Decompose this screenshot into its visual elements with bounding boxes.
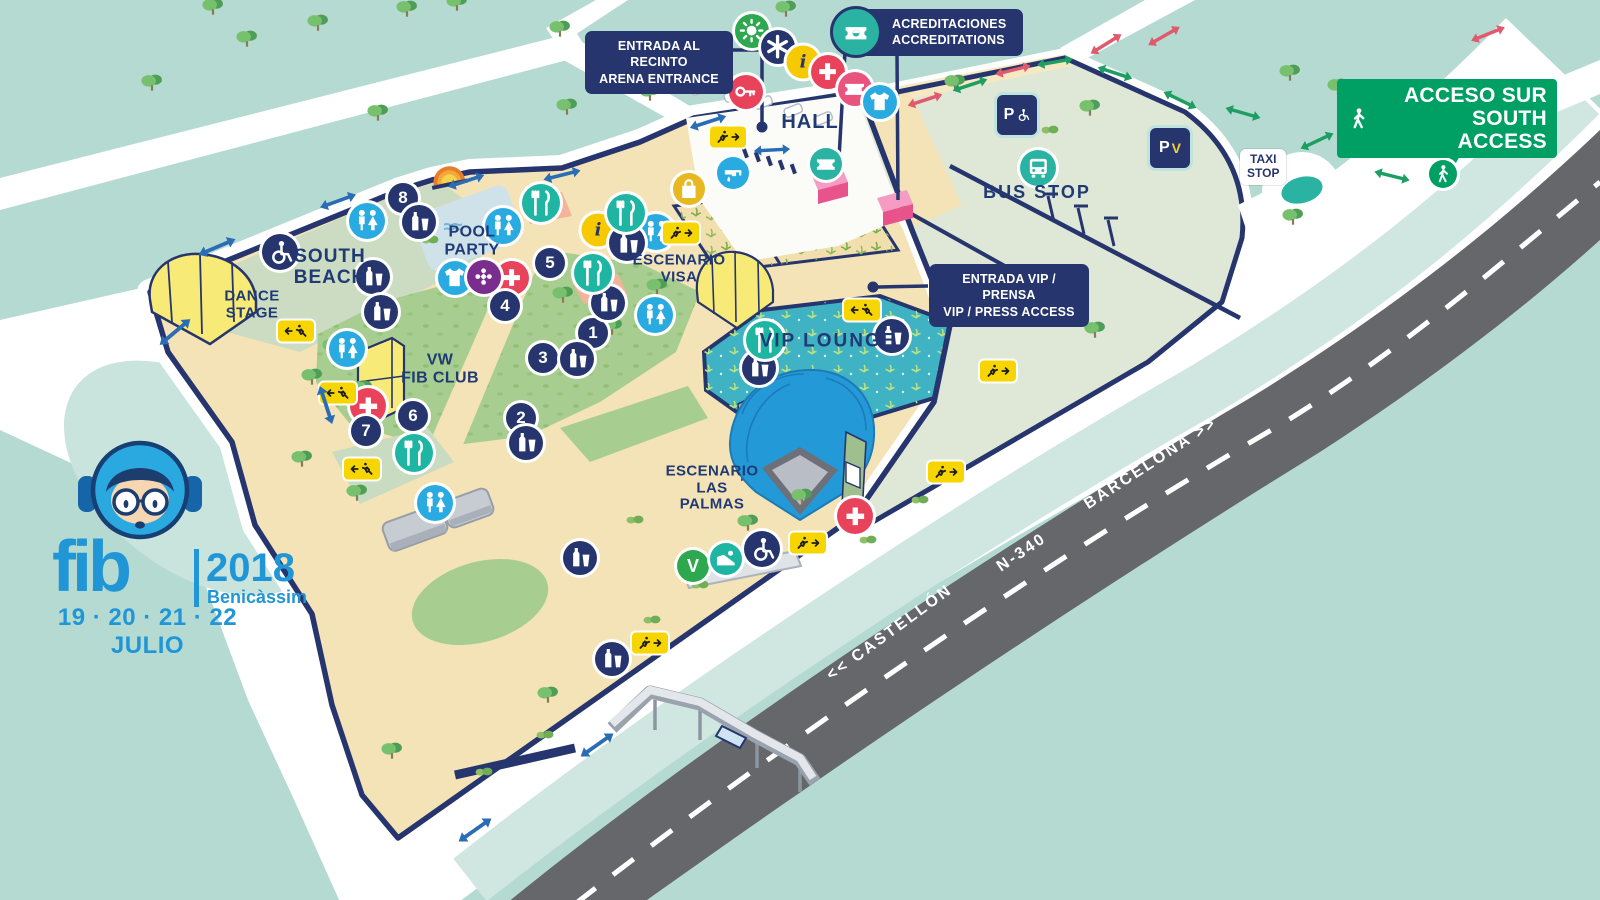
hall-label: HALL xyxy=(781,111,838,133)
south-access-callout: ACCESO SUR SOUTH ACCESS xyxy=(1337,79,1557,158)
bus-stop-label: BUS STOP xyxy=(983,183,1091,203)
escenario-las-palmas-label: ESCENARIO LAS PALMAS xyxy=(666,463,759,513)
pool-party-label: POOL PARTY xyxy=(444,223,499,258)
logo-fib-text: fib xyxy=(52,531,128,603)
south-beach-label: SOUTH BEACH xyxy=(294,247,367,289)
festival-map: ii85413267VPPV≈≈ HALL BUS STOP POOL PART… xyxy=(0,0,1600,900)
walker-icon xyxy=(1347,104,1371,134)
escenario-visa-label: ESCENARIO VISA xyxy=(633,253,726,286)
vw-club-tent xyxy=(358,338,404,424)
dance-stage-label: DANCE STAGE xyxy=(224,289,279,322)
logo-year: 2018 xyxy=(206,548,295,588)
vip-press-callout: ENTRADA VIP / PRENSA VIP / PRESS ACCESS xyxy=(929,264,1089,327)
vip-lounge-label: VIP LOUNGE xyxy=(760,332,897,353)
taxi-stop-callout: TAXI STOP xyxy=(1240,149,1286,185)
arena-entrance-callout: ENTRADA AL RECINTO ARENA ENTRANCE xyxy=(585,31,733,94)
logo-divider xyxy=(194,549,199,607)
accreditations-icon xyxy=(830,6,882,58)
vw-fib-club-label: VW FIB CLUB xyxy=(401,351,479,386)
logo-dates: 19 · 20 · 21 · 22 JULIO xyxy=(20,604,275,660)
